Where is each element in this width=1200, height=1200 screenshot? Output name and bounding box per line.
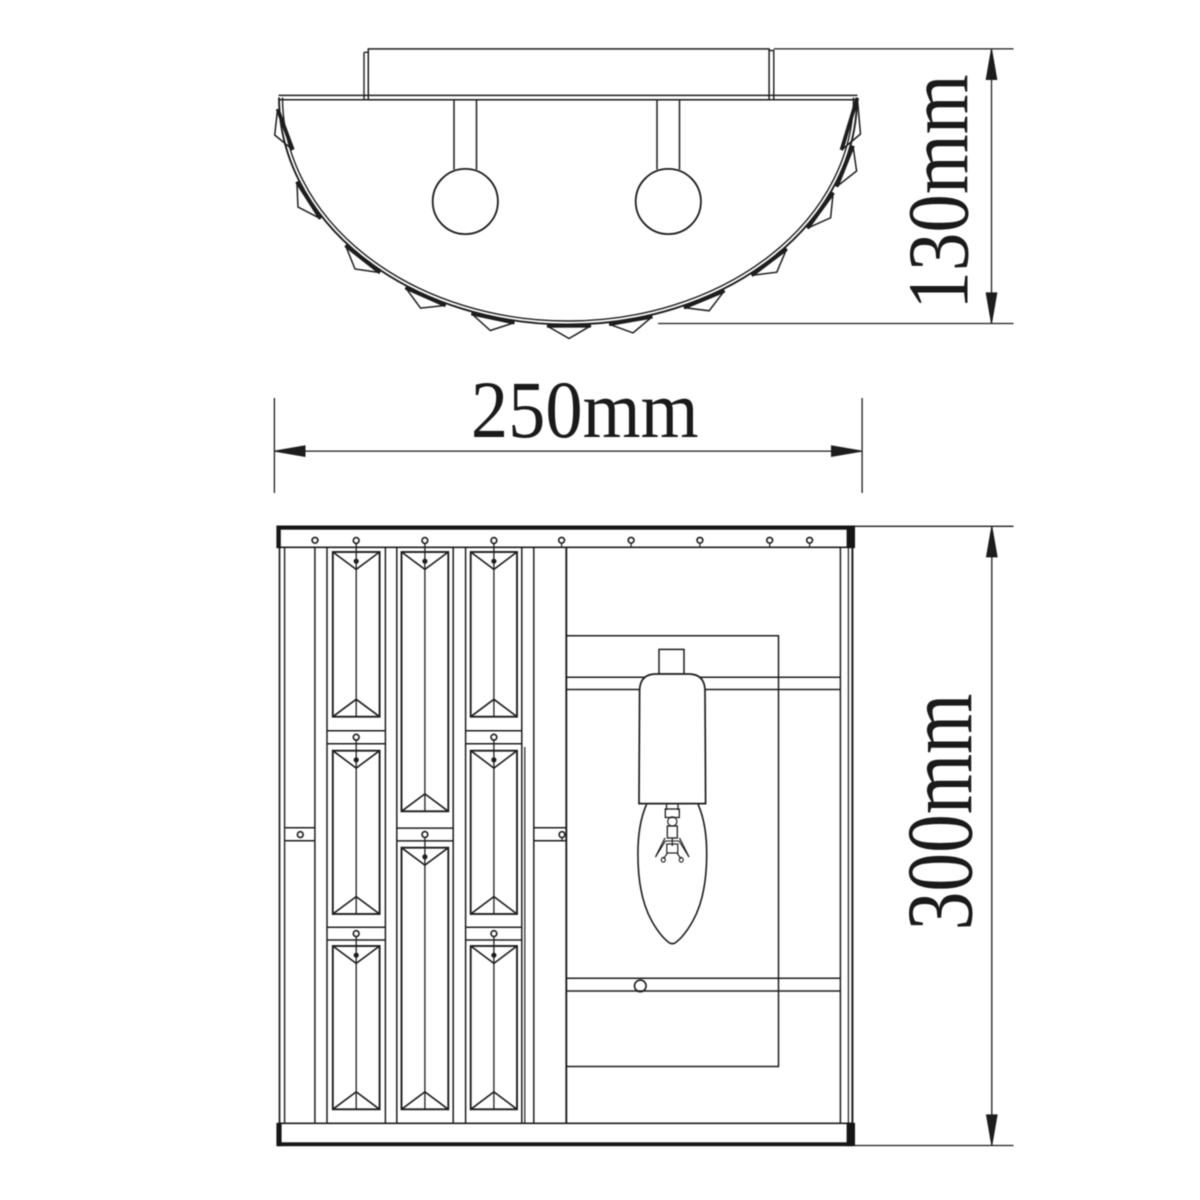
svg-text:130mm: 130mm [890, 74, 986, 309]
svg-text:300mm: 300mm [888, 694, 993, 931]
svg-text:250mm: 250mm [471, 364, 699, 455]
